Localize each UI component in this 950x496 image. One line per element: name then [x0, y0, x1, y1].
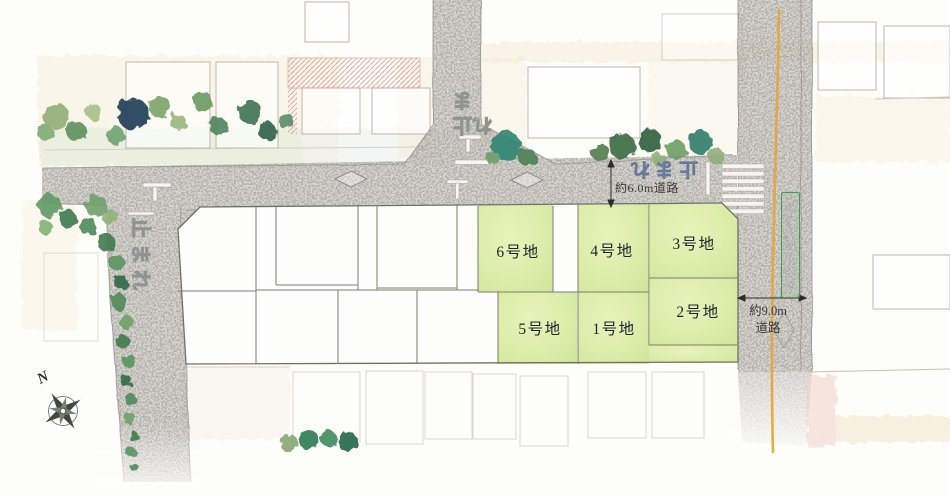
plot-label-6: 6号地 — [496, 240, 539, 262]
plot-label-1: 1号地 — [592, 317, 635, 339]
lower-plot-outlines — [293, 371, 704, 446]
road-width-arrow-6m — [608, 160, 614, 207]
crosswalk — [722, 164, 764, 214]
plot-label-3: 3号地 — [672, 232, 715, 254]
red-hatched-building — [288, 58, 420, 134]
site-plan-canvas: 6号地 4号地 3号地 2号地 5号地 1号地 約6.0m道路 約9.0m 道路… — [0, 0, 950, 496]
east-road-width-label: 約9.0m 道路 — [745, 303, 791, 337]
center-line-orange — [772, 10, 779, 452]
stop-marking-north-road: 止まれ — [455, 64, 495, 136]
north-road-width-label: 約6.0m道路 — [615, 179, 679, 196]
east-road-fade — [728, 368, 820, 454]
left-road-fade — [96, 424, 200, 496]
school-zone-road-marking: スクールゾーン — [781, 192, 800, 298]
plot-label-5: 5号地 — [518, 317, 561, 339]
east-road-width-line1: 約9.0m — [745, 303, 791, 320]
plot-label-4: 4号地 — [590, 239, 633, 261]
plot-1-south-strip — [649, 345, 738, 363]
compass-north-label: N — [35, 368, 53, 388]
school-zone-text: スクールゾーン — [783, 201, 799, 289]
compass-rose — [34, 382, 92, 440]
east-road-width-line2: 道路 — [745, 320, 791, 337]
stop-marking-east-approach: 止まれ — [624, 159, 698, 178]
building-outlines — [44, 2, 950, 372]
plot-label-2: 2号地 — [676, 300, 719, 322]
stop-marking-west-road: 止まれ — [130, 218, 150, 302]
bottom-right-washes — [807, 375, 950, 447]
